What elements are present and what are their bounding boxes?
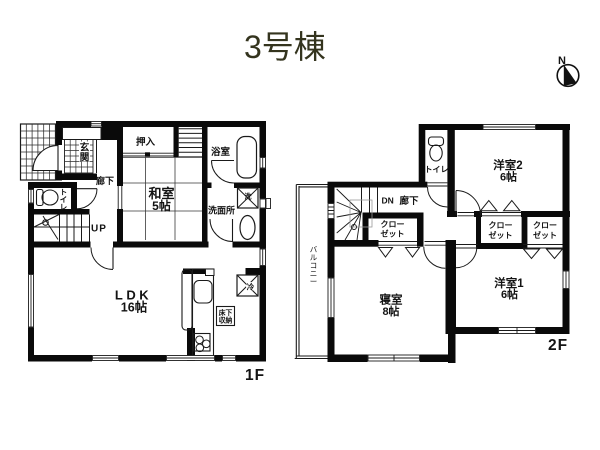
svg-text:レ: レ (60, 203, 68, 212)
svg-text:ゼット: ゼット (489, 230, 513, 240)
svg-text:廊下: 廊下 (96, 175, 114, 186)
svg-text:クロー: クロー (533, 220, 557, 230)
svg-text:床下: 床下 (219, 308, 233, 317)
svg-text:洗: 洗 (245, 192, 252, 201)
svg-text:1F: 1F (245, 367, 265, 384)
svg-text:ー: ー (310, 277, 318, 286)
svg-text:洋室1: 洋室1 (494, 276, 524, 290)
svg-text:寝室: 寝室 (380, 293, 403, 307)
svg-text:クロー: クロー (381, 219, 405, 229)
svg-text:UP: UP (91, 224, 107, 235)
svg-text:DN: DN (382, 196, 394, 206)
svg-text:洗面所: 洗面所 (208, 205, 235, 216)
svg-text:ゼット: ゼット (533, 230, 557, 240)
svg-text:N: N (558, 55, 566, 67)
svg-text:関: 関 (80, 153, 90, 164)
svg-text:6帖: 6帖 (500, 170, 517, 184)
svg-text:廊下: 廊下 (400, 195, 420, 207)
svg-text:洋室2: 洋室2 (493, 158, 522, 172)
svg-text:クロー: クロー (489, 220, 513, 230)
svg-text:トイレ: トイレ (425, 165, 449, 174)
svg-text:冷: 冷 (247, 282, 255, 292)
svg-text:5帖: 5帖 (152, 198, 171, 213)
svg-text:収納: 収納 (219, 316, 233, 325)
svg-text:6帖: 6帖 (501, 287, 518, 301)
svg-text:16帖: 16帖 (121, 300, 148, 315)
svg-text:浴室: 浴室 (211, 146, 231, 158)
svg-text:3号棟: 3号棟 (244, 29, 326, 65)
svg-text:2F: 2F (548, 337, 568, 354)
svg-text:押入: 押入 (136, 136, 156, 148)
svg-text:ゼット: ゼット (381, 229, 405, 239)
svg-text:8帖: 8帖 (382, 304, 399, 318)
